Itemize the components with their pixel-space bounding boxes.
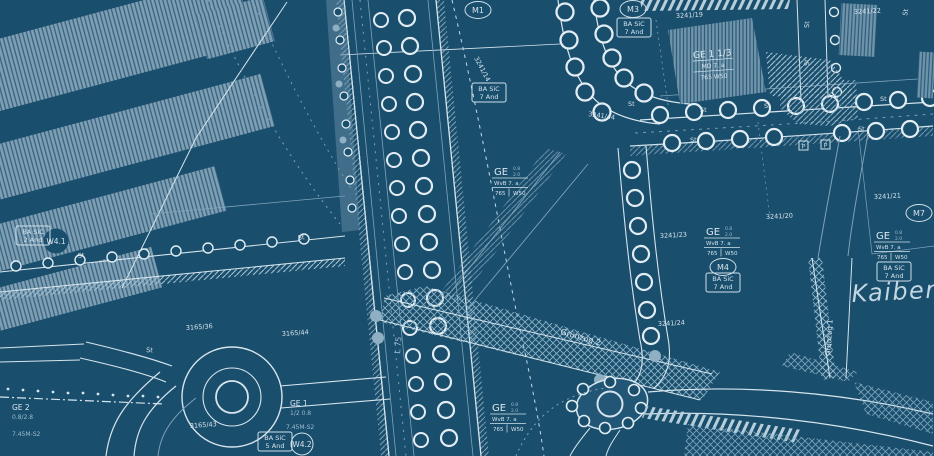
parcel-number: 3241/19	[676, 11, 703, 20]
parking-label: P	[824, 143, 828, 150]
parking-label: P	[802, 144, 806, 151]
ge-sup-bottom: 2.0	[895, 236, 902, 242]
ge1-line1: GE 1	[290, 399, 308, 408]
restriction-line2: 2 And	[24, 236, 43, 244]
street-tree-label: St	[803, 21, 811, 28]
restriction-line1: BA SiC	[712, 275, 734, 283]
ge2-line3: 7.45M-S2	[12, 431, 41, 438]
street-tree-label: St	[858, 125, 865, 133]
ge-bottom-right: W50	[895, 255, 908, 261]
zoning-plan-viewport: M1 M3 M4 M7 W4.1 W4.2 BA SiC 7 And BA Si…	[0, 0, 934, 456]
ge-bottom-right: W50	[513, 191, 526, 197]
zone-marker-label: M4	[717, 263, 729, 272]
ge1-line3: 7.45M-S2	[286, 424, 315, 431]
ge-main: GE	[492, 403, 506, 414]
zone-marker-w41: W4.1	[44, 229, 69, 254]
ge-sup-top: 0.8	[513, 166, 520, 172]
ge-bottom-left: 765	[877, 255, 888, 261]
restriction-line2: 7 And	[480, 93, 499, 101]
ge-sup-bottom: 2.0	[725, 232, 732, 238]
street-tree-label: St	[803, 59, 811, 66]
ge2-line2: 0.8/2.8	[12, 414, 33, 421]
parcel-number: 3241/23	[660, 231, 687, 240]
restriction-line1: BA SiC	[623, 20, 645, 28]
parcel-number: 3241/21	[874, 192, 901, 201]
ge-sup-top: 0.8	[895, 230, 902, 236]
zoning-map-canvas[interactable]: M1 M3 M4 M7 W4.1 W4.2 BA SiC 7 And BA Si…	[0, 0, 934, 456]
street-tree-label: St	[764, 102, 771, 110]
ge-sup-top: 0.8	[725, 226, 732, 232]
restriction-line1: BA SiC	[22, 228, 44, 236]
street-tree-label: St	[690, 136, 697, 144]
ge-bottom-left: 765	[495, 191, 506, 197]
ge-sup-top: 0.8	[511, 402, 518, 408]
restriction-line1: BA SiC	[264, 434, 286, 442]
ge-bottom-right: W50	[725, 251, 738, 257]
restriction-line2: 5 And	[266, 442, 285, 450]
ge-bottom-left: 765	[493, 427, 504, 433]
ge-bottom-left: 765	[707, 251, 718, 257]
ge-main: GE	[876, 231, 890, 242]
ge-mid: WvB 7. a	[706, 241, 731, 247]
ge-sup-bottom: 2.0	[513, 172, 520, 178]
street-tree-label: St	[880, 95, 887, 103]
restriction-line2: 7 And	[625, 28, 644, 36]
ge-main: GE	[494, 167, 508, 178]
restriction-line2: 7 And	[714, 283, 733, 291]
street-tree-label: St	[700, 106, 707, 114]
street-name-l75: L 75	[393, 336, 403, 354]
ge-main: GE	[706, 227, 720, 238]
zone-marker-label: W4.2	[292, 440, 312, 449]
restriction-line1: BA SiC	[478, 85, 500, 93]
zone-marker-label: M7	[913, 209, 925, 218]
ge-mid: WvB 7. a	[494, 181, 519, 187]
street-tree-label: St	[146, 346, 154, 354]
restriction-line1: BA SiC	[883, 264, 905, 272]
parcel-number: 3241/24	[658, 319, 685, 328]
zone-marker-label: M3	[627, 5, 639, 14]
ge-mid: WvB 7. a	[492, 417, 517, 423]
street-name-kaiber: Kaiber	[851, 276, 934, 308]
parcel-number: 3241/20	[766, 212, 793, 221]
zone-marker-label: M1	[472, 6, 484, 15]
ge-bottom-right: W50	[511, 427, 524, 433]
parcel-number: 3241/22	[854, 7, 881, 16]
street-tree-label: St	[628, 100, 635, 108]
ge1-line2: 1/2 0.8	[290, 410, 311, 417]
ge-mid: WvB 7. a	[876, 245, 901, 251]
ge-sup-bottom: 2.0	[511, 408, 518, 414]
ge2-line1: GE 2	[12, 403, 30, 412]
